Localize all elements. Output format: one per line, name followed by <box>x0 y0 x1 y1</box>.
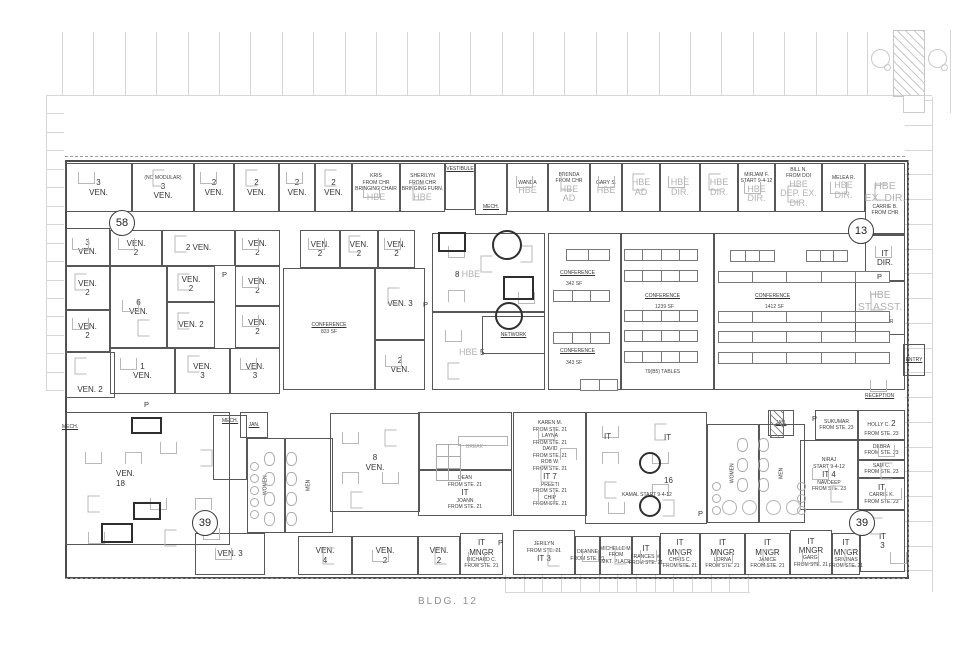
desk <box>633 174 645 191</box>
room-label: VESTIBULE <box>446 166 474 173</box>
conference-table <box>806 250 848 262</box>
room-labels: VEN. 3 <box>376 269 424 339</box>
room-labels: SUKUMARFROM STE. 23 <box>816 411 857 439</box>
column-circle <box>495 302 523 330</box>
table-cell <box>680 250 697 260</box>
desk <box>413 184 425 201</box>
desk <box>679 550 691 567</box>
property-line <box>65 156 905 157</box>
desk <box>812 468 829 480</box>
room-labels: CONFERENCE833 SF <box>284 269 374 389</box>
plan-label: CONFERENCE <box>645 293 680 300</box>
room: VEN.3 <box>175 348 230 394</box>
landscape-icon <box>884 64 891 71</box>
desk <box>548 550 560 567</box>
toilet-icon <box>264 472 275 486</box>
room-labels: VEN.3 <box>176 349 229 393</box>
desk <box>845 550 857 567</box>
desk <box>363 186 380 198</box>
plan-label: CONFERENCE <box>560 348 595 355</box>
desk <box>342 432 359 444</box>
room: VEN.2 <box>235 306 280 348</box>
conference-table <box>566 249 610 261</box>
toilet-icon <box>286 472 297 486</box>
desk <box>582 550 599 562</box>
room: VEN. 3 <box>375 268 425 340</box>
interior-wall <box>620 233 622 390</box>
room: VEN.2 <box>167 266 215 302</box>
room-labels: MECH. <box>476 164 506 214</box>
table-cell <box>719 353 753 363</box>
room: NIRAJSTART 9-4-12IT 4NAVDEEPFROM STE. 23 <box>800 440 858 510</box>
toilet-icon <box>264 452 275 466</box>
parking-stall-line <box>46 150 64 151</box>
desk <box>342 472 359 484</box>
keyplan-marker: 13 <box>848 218 874 244</box>
table-cell <box>643 311 661 321</box>
desk <box>200 172 217 184</box>
desk <box>668 176 685 188</box>
parking-stall-line <box>564 32 565 95</box>
parking-stall-line <box>816 32 817 95</box>
conference-table <box>624 310 698 322</box>
room-label: HBE <box>459 347 480 357</box>
table-cell <box>787 353 821 363</box>
desk <box>138 320 150 337</box>
table-cell <box>719 312 753 322</box>
room-label: HOLLY C. <box>867 422 891 428</box>
parking-stall-line <box>905 496 932 497</box>
parking-stall-line <box>313 32 314 95</box>
parking-stall-line <box>46 113 64 114</box>
table-cell <box>680 331 697 341</box>
room: 8VEN. <box>330 413 420 512</box>
desk <box>763 550 775 567</box>
parking-stall-line <box>753 32 754 95</box>
desk <box>240 358 257 370</box>
plan-label: IT <box>664 433 671 442</box>
parking-stall-line <box>905 546 932 547</box>
conference-table <box>624 351 698 363</box>
parking-stall-line <box>905 397 932 398</box>
parking-stall-line <box>905 199 932 200</box>
parking-stall-line <box>659 32 660 95</box>
desk <box>802 552 819 564</box>
column-circle <box>639 452 661 474</box>
site-line <box>867 32 868 95</box>
table-cell <box>760 251 774 261</box>
plan-label: 16 <box>664 476 673 485</box>
desk <box>120 358 137 370</box>
desk <box>561 174 573 191</box>
room: HOLLY C. 2FROM STE. 23 <box>858 410 905 440</box>
plan-label: 1239 SF <box>655 304 674 311</box>
conference-table <box>624 330 698 342</box>
table-cell <box>662 271 680 281</box>
ladder-icon <box>770 410 784 438</box>
parking-stall-line <box>905 249 932 250</box>
room-labels: VEN. 2 <box>168 303 214 347</box>
keyplan-marker: 39 <box>849 510 875 536</box>
desk <box>88 496 100 513</box>
desk <box>125 452 142 464</box>
fixture-icon <box>766 500 781 515</box>
toilet-icon <box>737 478 748 492</box>
desk <box>448 290 465 302</box>
desk <box>445 330 462 342</box>
room-label: HOLLY C. 2 <box>867 413 895 431</box>
floor-plan-canvas: BLDG. 12 3VEN.(NO MODULAR)3VEN.2VEN.2VEN… <box>0 0 960 660</box>
table-cell <box>680 352 697 362</box>
room-label: MEN <box>306 480 313 491</box>
room-label: IT <box>478 538 485 547</box>
desk <box>605 482 617 499</box>
desk <box>165 530 177 547</box>
parking-stall-line <box>502 32 503 95</box>
room-label: IT <box>842 538 849 547</box>
plan-label: CONFERENCE <box>560 270 595 277</box>
parking-stall-line <box>533 32 534 95</box>
room-label: FROM STE. 21 <box>448 504 482 511</box>
room-label: VEN. <box>89 188 108 197</box>
desk <box>640 550 657 562</box>
desk <box>831 486 843 503</box>
desk <box>246 170 258 187</box>
desk <box>118 238 135 250</box>
table-cell <box>822 353 856 363</box>
room-label: IT <box>719 538 726 547</box>
parking-stall-line <box>188 32 189 95</box>
table-cell <box>680 311 697 321</box>
interior-wall <box>713 233 715 390</box>
table-cell <box>731 251 746 261</box>
site-rect <box>903 95 925 113</box>
parking-stall-line <box>407 32 408 95</box>
equipment-box <box>503 276 534 300</box>
room-label: VEN. <box>116 469 135 478</box>
room: ENTRY <box>903 344 925 376</box>
desk <box>385 355 402 367</box>
room-label: 3 <box>96 178 100 187</box>
sink-icon <box>250 498 259 507</box>
room-label: DIR. <box>671 188 689 197</box>
desk <box>153 170 165 187</box>
parking-stall-line <box>470 32 471 95</box>
plan-label: BREAK <box>466 444 483 451</box>
desk <box>875 246 892 258</box>
desk <box>188 356 200 373</box>
room: JERILYNFROM STE. 21IT 3 <box>513 530 575 575</box>
desk <box>215 548 232 560</box>
parking-stall-line <box>46 280 64 281</box>
parking-stall-line <box>905 521 932 522</box>
desk <box>349 236 361 253</box>
room-labels: JERILYNFROM STE. 21IT 3 <box>514 531 574 574</box>
p-marker: P <box>498 538 503 547</box>
parking-stall-line <box>46 316 64 317</box>
desk <box>435 548 447 565</box>
sink-icon <box>712 494 721 503</box>
room-label: FROM STE. 23 <box>864 431 898 438</box>
p-marker: P <box>423 300 428 309</box>
room-labels: VEN.3 <box>231 349 279 393</box>
toilet-icon <box>264 512 275 526</box>
table-cell <box>643 331 661 341</box>
desk <box>308 238 325 250</box>
parking-stall-line <box>905 150 932 151</box>
equipment-box <box>438 232 466 252</box>
desk <box>372 550 389 562</box>
table-cell <box>821 251 835 261</box>
desk <box>608 502 625 514</box>
fixture-icon <box>786 500 801 515</box>
room-label: FROM STE. 21 <box>705 563 739 570</box>
toilet-icon <box>737 458 748 472</box>
parking-stall-line <box>376 32 377 95</box>
desk <box>890 552 907 564</box>
room-label: CONFERENCE <box>311 322 346 329</box>
room: VESTIBULE <box>445 163 475 210</box>
table-cell <box>643 352 661 362</box>
table-cell <box>591 333 609 343</box>
plan-label: RECEPTION <box>865 393 894 400</box>
plan-label: MECH. <box>62 424 78 431</box>
desk <box>881 463 893 480</box>
desk <box>75 274 87 291</box>
parking-stall-line <box>219 32 220 95</box>
desk <box>541 466 553 483</box>
room: VEN.2 <box>65 310 110 352</box>
table-cell <box>856 312 889 322</box>
desk <box>468 552 485 564</box>
fixture-icon <box>722 500 737 515</box>
table-cell <box>662 352 680 362</box>
desk <box>175 236 187 253</box>
parking-stall-line <box>905 422 932 423</box>
conference-table <box>718 311 890 323</box>
table-cell <box>822 312 856 322</box>
room-label: MEN <box>779 468 786 479</box>
desk <box>602 452 619 464</box>
parking-stall-line <box>46 353 64 354</box>
desk <box>195 498 212 510</box>
toilet-icon <box>286 512 297 526</box>
room-labels: VEN.2 <box>236 307 279 347</box>
equipment-box <box>101 523 133 543</box>
equipment-box <box>131 417 162 434</box>
room-label: 1 <box>140 362 144 371</box>
desk <box>481 256 493 273</box>
parking-stall-line <box>62 32 63 95</box>
room-label: 2 <box>85 331 89 340</box>
room-label: 2 <box>891 419 895 428</box>
p-marker: P <box>144 400 149 409</box>
room: SUKUMARFROM STE. 23 <box>815 410 858 440</box>
conference-table <box>624 270 698 282</box>
table-cell <box>573 333 592 343</box>
room-label: 2 <box>255 327 259 336</box>
parking-stall-line <box>905 174 932 175</box>
room-label: IT <box>878 483 885 492</box>
desk <box>560 448 577 460</box>
sink-icon <box>250 510 259 519</box>
parking-stall-line <box>905 471 932 472</box>
parking-stall-line <box>905 125 932 126</box>
sink-icon <box>797 482 806 491</box>
desk <box>516 176 533 188</box>
parking-stall-line <box>46 206 64 207</box>
table-cell <box>625 311 643 321</box>
room-label: 2 <box>394 249 398 258</box>
room-label: ENTRY <box>906 357 923 364</box>
toilet-icon <box>758 478 769 492</box>
conference-table <box>624 249 698 261</box>
table-cell <box>753 272 787 282</box>
parking-stall-line <box>46 261 64 262</box>
site-line <box>932 97 933 592</box>
sink-icon <box>250 474 259 483</box>
desk <box>78 172 95 184</box>
site-line <box>48 95 932 96</box>
parking-stall-line <box>46 298 64 299</box>
room: VEN. 2 <box>65 352 115 398</box>
table-cell <box>625 331 643 341</box>
parking-stall-line <box>905 570 932 571</box>
site-line <box>950 30 951 113</box>
p-marker: P <box>698 509 703 518</box>
desk <box>382 472 399 484</box>
parking-stall-line <box>905 298 932 299</box>
table-cell <box>591 291 609 301</box>
conference-table <box>718 352 890 364</box>
room-label: WOMEN <box>730 464 737 484</box>
room: VEN.2 <box>65 266 110 310</box>
room-label: NETWORK <box>501 332 527 339</box>
desk <box>709 174 721 191</box>
desk <box>744 182 761 194</box>
room: 1VEN. <box>110 348 175 394</box>
room: VEN. 2 <box>167 302 215 348</box>
parking-stall-line <box>905 323 932 324</box>
desk <box>242 238 259 250</box>
desk <box>875 184 887 201</box>
keyplan-marker: 39 <box>192 510 218 536</box>
room-label: FROM STE. 21 <box>464 563 498 570</box>
desk <box>716 552 733 564</box>
desk <box>72 238 89 250</box>
desk <box>242 315 259 327</box>
room-label: DIR. <box>748 194 766 203</box>
desk <box>448 363 460 380</box>
room-label: FROM STE. 23 <box>819 425 853 432</box>
desk <box>663 500 675 517</box>
table-cell <box>787 312 821 322</box>
parking-stall-line <box>46 95 64 96</box>
p-marker: P <box>222 270 227 279</box>
room-label: JAN. <box>249 422 260 429</box>
plan-label: 1412 SF <box>765 304 784 311</box>
table-cell <box>753 332 787 342</box>
sink-icon <box>250 486 259 495</box>
table-cell <box>753 312 787 322</box>
room-label: VEN. <box>205 188 224 197</box>
hatched-area <box>893 30 925 97</box>
conference-table <box>580 379 618 391</box>
table-cell <box>625 250 643 260</box>
parking-stall-line <box>690 32 691 95</box>
room-labels: VEN.2 <box>168 267 214 301</box>
room-label: 8 <box>455 270 462 279</box>
table-cell <box>662 331 680 341</box>
room-labels: JAN. <box>241 413 267 437</box>
room: VEN.3 <box>230 348 280 394</box>
table-cell <box>589 250 610 260</box>
desk <box>830 182 847 194</box>
building-title: BLDG. 12 <box>418 596 478 607</box>
room-label: HBE 5 <box>459 342 484 360</box>
room-label: VEN. <box>133 371 152 380</box>
parking-stall-line <box>46 335 64 336</box>
room-labels: VESTIBULE <box>446 164 474 209</box>
desk <box>871 294 883 311</box>
plan-label: CONFERENCE <box>755 293 790 300</box>
table-cell <box>573 291 592 301</box>
room: DEANFROM STE. 21ITJOANNFROM STE. 21 <box>418 470 512 516</box>
toilet-icon <box>286 452 297 466</box>
desk <box>885 488 902 500</box>
desk <box>72 318 89 330</box>
conference-table <box>730 250 775 262</box>
table-cell <box>856 332 889 342</box>
column-circle <box>492 230 522 260</box>
room-label: IT <box>676 538 683 547</box>
room: 2VEN. <box>279 163 315 212</box>
room: JAN. <box>240 412 268 438</box>
room-label: 3 <box>200 371 204 380</box>
parking-stall-line <box>905 273 932 274</box>
shelf-icon <box>448 468 461 481</box>
room-label: FROM CHR <box>872 210 899 217</box>
desk <box>201 450 213 467</box>
parking-stall-line <box>596 32 597 95</box>
room-labels: DEANFROM STE. 21ITJOANNFROM STE. 21 <box>419 471 511 515</box>
room-labels: ENTRY <box>904 345 924 375</box>
table-cell <box>625 352 643 362</box>
room-labels: HOLLY C. 2FROM STE. 23 <box>859 411 904 439</box>
room-label: HBE <box>462 269 481 279</box>
table-cell <box>662 250 680 260</box>
table-cell <box>643 271 661 281</box>
room: 3VEN. <box>65 163 132 212</box>
room-label: 18 <box>116 479 125 488</box>
room: 2VEN. <box>194 163 234 212</box>
plan-label: 343 SF <box>566 360 582 367</box>
table-cell <box>753 353 787 363</box>
desk <box>538 428 555 440</box>
desk <box>788 186 800 203</box>
parking-stall-line <box>905 447 932 448</box>
room-label: 3 <box>253 371 257 380</box>
desk <box>615 548 627 565</box>
room-label: AD <box>563 194 576 203</box>
room-label: 833 SF <box>321 329 337 336</box>
table-cell <box>719 332 753 342</box>
table-cell <box>567 250 589 260</box>
parking-stall-line <box>250 32 251 95</box>
room-label: 2 VEN. <box>186 243 211 252</box>
room-label: 8 <box>373 453 377 462</box>
parking-stall-line <box>46 187 64 188</box>
